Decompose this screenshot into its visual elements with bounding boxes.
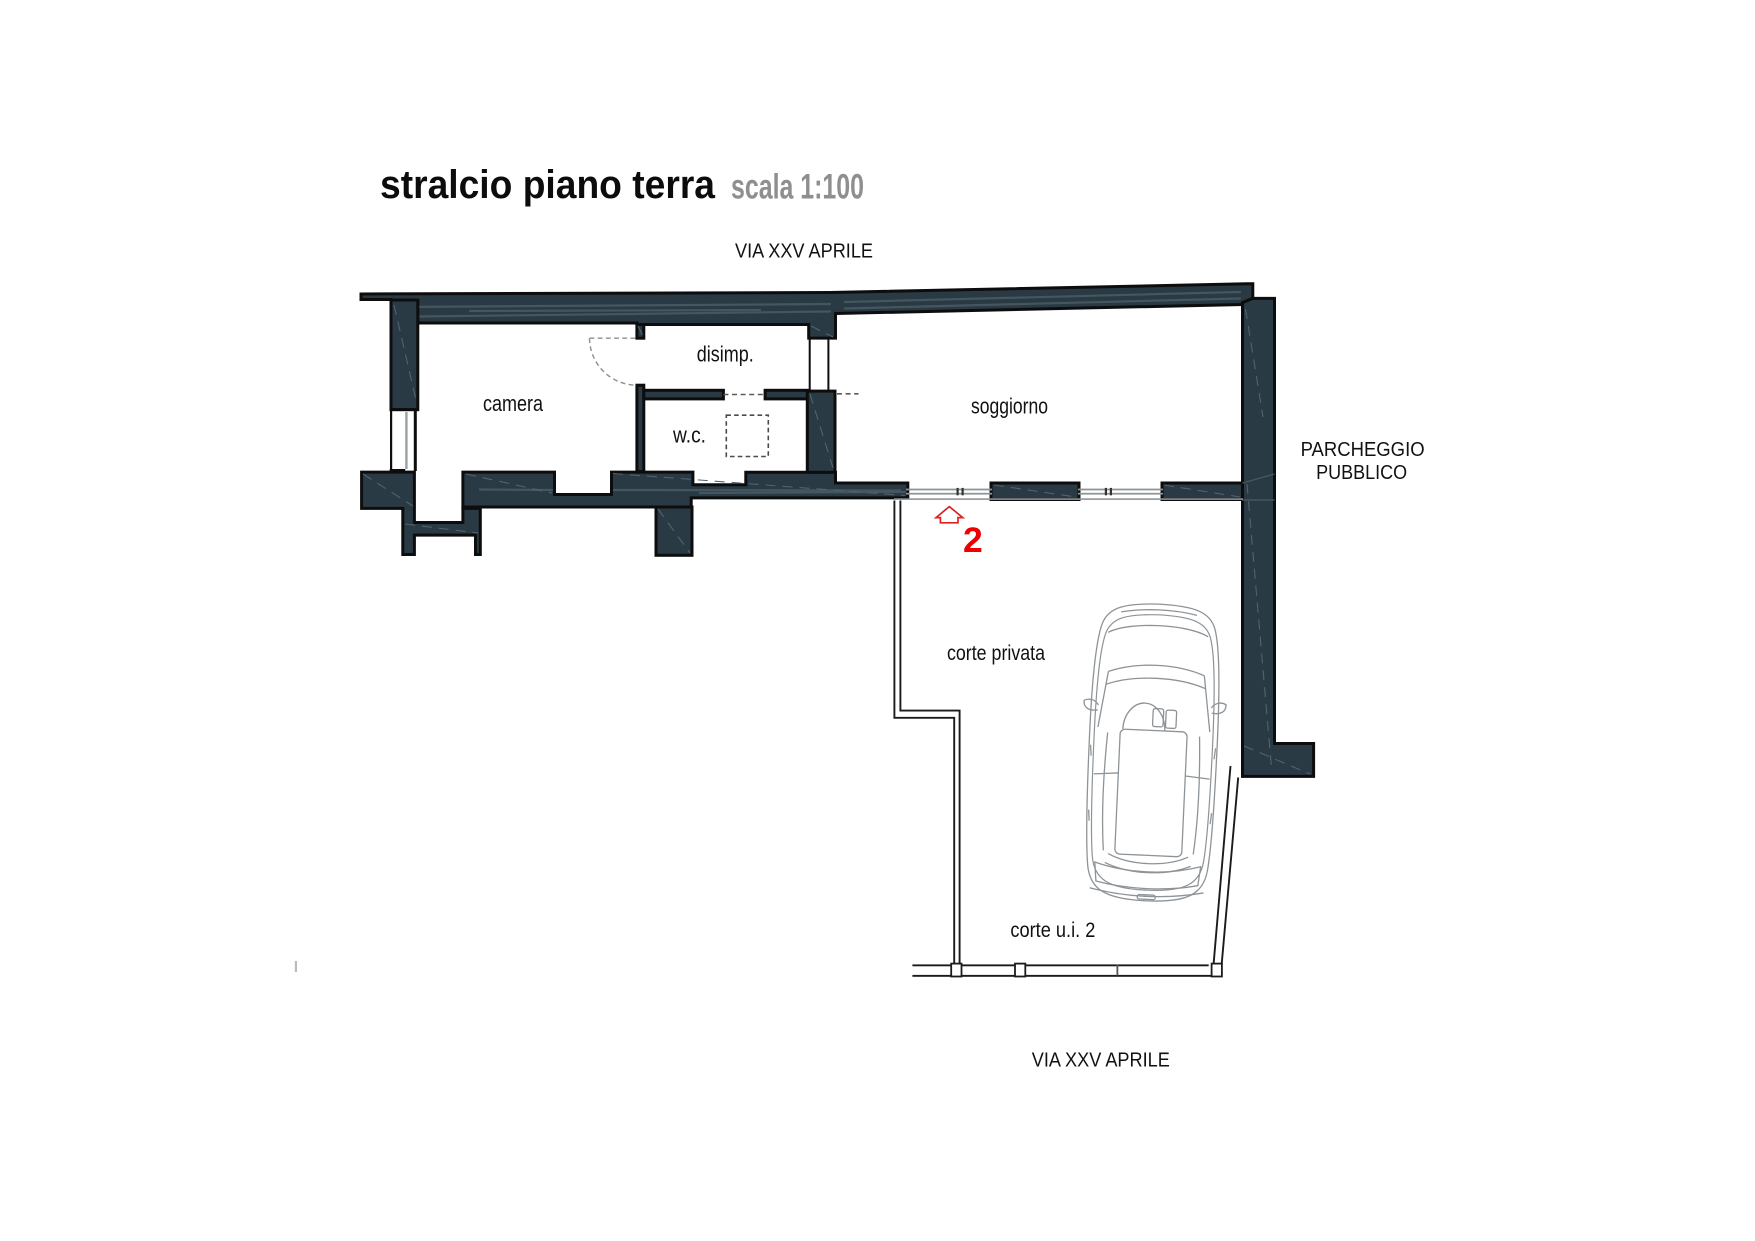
svg-text:PUBBLICO: PUBBLICO (1316, 462, 1407, 484)
svg-text:corte privata: corte privata (947, 642, 1045, 665)
svg-text:PARCHEGGIO: PARCHEGGIO (1301, 439, 1425, 461)
svg-text:camera: camera (483, 391, 544, 416)
svg-text:VIA XXV APRILE: VIA XXV APRILE (735, 241, 873, 263)
svg-text:VIA XXV APRILE: VIA XXV APRILE (1032, 1050, 1170, 1072)
svg-text:soggiorno: soggiorno (971, 394, 1048, 419)
svg-text:2: 2 (963, 520, 983, 560)
svg-text:disimp.: disimp. (697, 342, 754, 367)
svg-text:corte u.i. 2: corte u.i. 2 (1010, 919, 1095, 942)
svg-text:w.c.: w.c. (672, 423, 706, 448)
svg-text:stralcio piano terra: stralcio piano terra (380, 163, 716, 207)
svg-text:scala 1:100: scala 1:100 (731, 168, 864, 207)
